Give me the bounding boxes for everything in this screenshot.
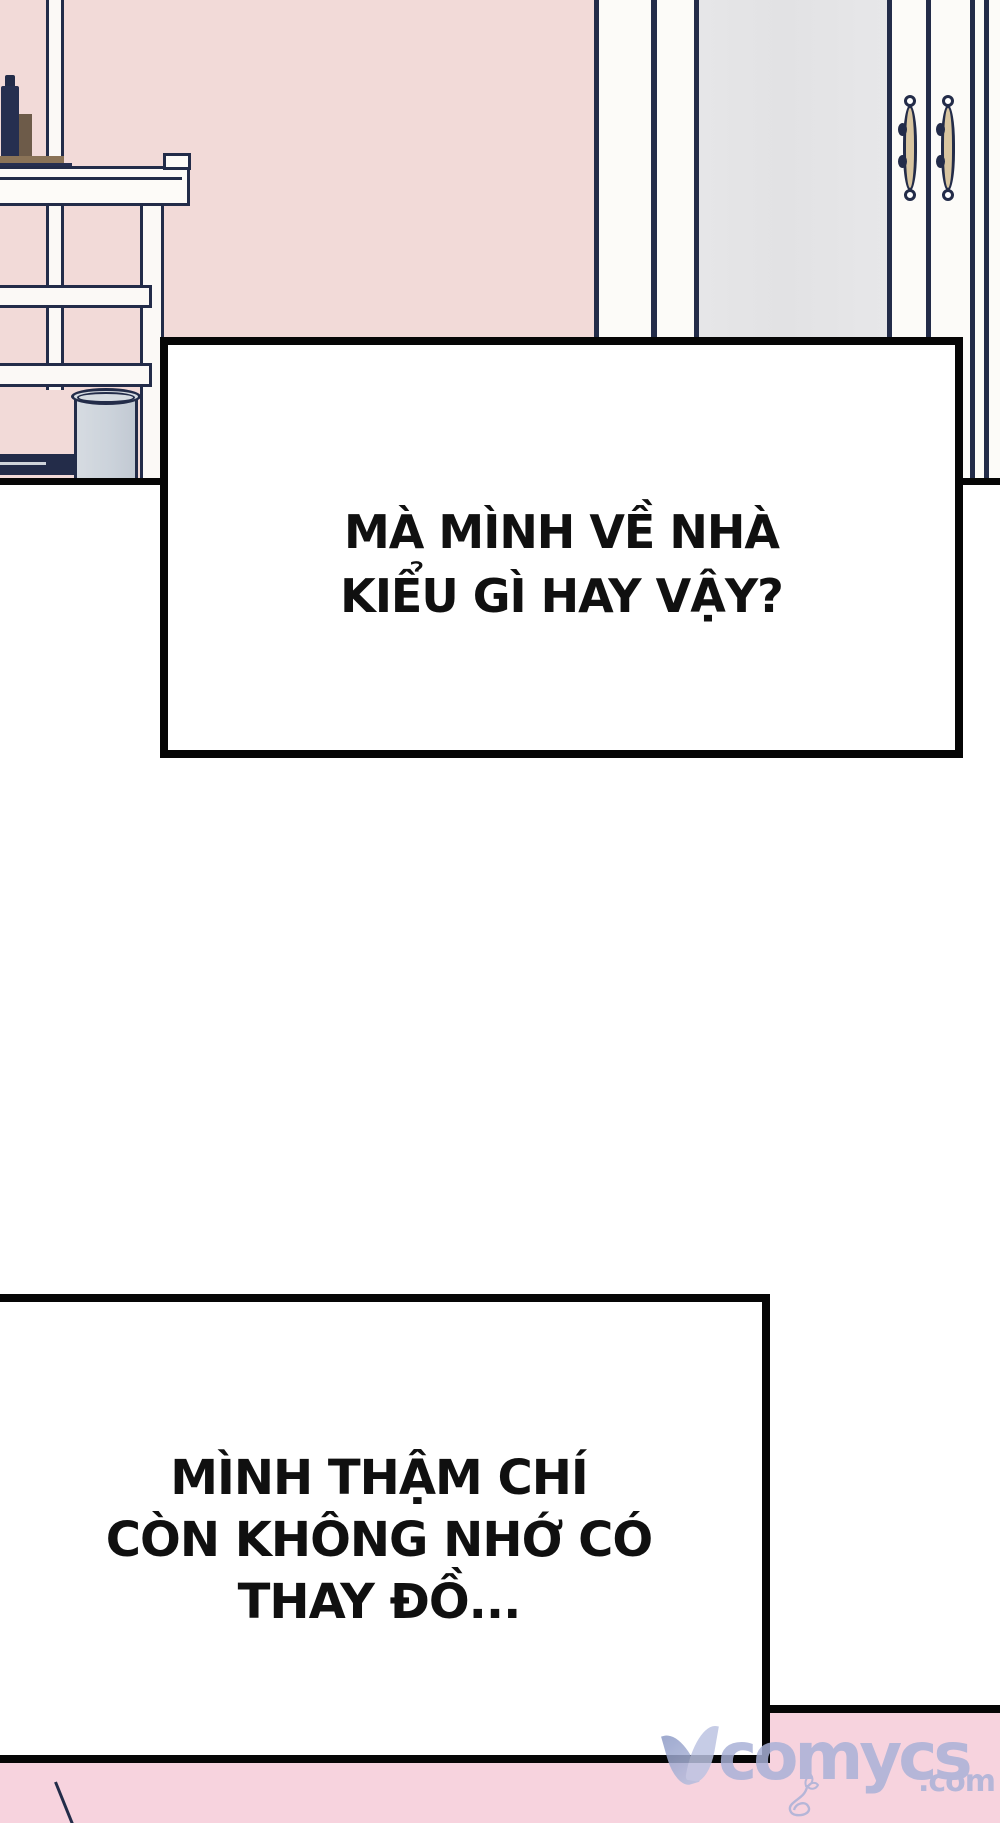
caption-box-2: MÌNH THẬM CHÍ CÒN KHÔNG NHỚ CÓ THAY ĐỒ..…	[0, 1294, 770, 1763]
wardrobe-handle-right	[941, 95, 955, 201]
handle-screw-icon	[898, 123, 907, 136]
handle-knob-icon	[904, 189, 916, 201]
trash-can	[74, 396, 138, 478]
watermark-domain: .com	[918, 1764, 995, 1799]
wardrobe-handle-left	[903, 95, 917, 201]
trash-can-inner-rim	[77, 392, 135, 403]
dark-floor-object-highlight	[0, 462, 46, 465]
handle-screw-icon	[936, 155, 945, 168]
decor-bottle	[1, 86, 19, 158]
decor-jar	[19, 114, 32, 158]
caption-text: MÌNH THẬM CHÍ CÒN KHÔNG NHỚ CÓ THAY ĐỒ..…	[0, 1302, 762, 1633]
caption-box-1: MÀ MÌNH VỀ NHÀ KIỂU GÌ HAY VẬY?	[160, 337, 963, 758]
table-top-edge-line	[0, 177, 182, 180]
watermark: comycs .com	[666, 1722, 1000, 1822]
handle-knob-icon	[942, 189, 954, 201]
caption-line: KIỂU GÌ HAY VẬY?	[168, 564, 955, 628]
wardrobe-frame-line	[984, 0, 989, 478]
caption-line: CÒN KHÔNG NHỚ CÓ	[0, 1509, 762, 1571]
table-beam-lower	[0, 363, 152, 387]
caption-line: MÌNH THẬM CHÍ	[0, 1447, 762, 1509]
table-corner-cap	[163, 153, 191, 170]
floor-border-line	[768, 1705, 1000, 1713]
table-beam-upper	[0, 285, 152, 308]
caption-text: MÀ MÌNH VỀ NHÀ KIỂU GÌ HAY VẬY?	[168, 345, 955, 628]
table-back-post	[46, 0, 64, 170]
table-top	[0, 166, 190, 206]
handle-grip	[941, 105, 955, 191]
handle-screw-icon	[936, 123, 945, 136]
watermark-v-leaf-icon	[685, 1722, 719, 1783]
dark-floor-object	[0, 454, 74, 475]
handle-grip	[903, 105, 917, 191]
wardrobe-frame-line	[970, 0, 975, 478]
caption-line: MÀ MÌNH VỀ NHÀ	[168, 500, 955, 564]
comic-page: MÀ MÌNH VỀ NHÀ KIỂU GÌ HAY VẬY? MÌNH THẬ…	[0, 0, 1000, 1823]
caption-line: THAY ĐỒ...	[0, 1571, 762, 1633]
flower-doodle-icon	[784, 1772, 828, 1820]
handle-screw-icon	[898, 155, 907, 168]
